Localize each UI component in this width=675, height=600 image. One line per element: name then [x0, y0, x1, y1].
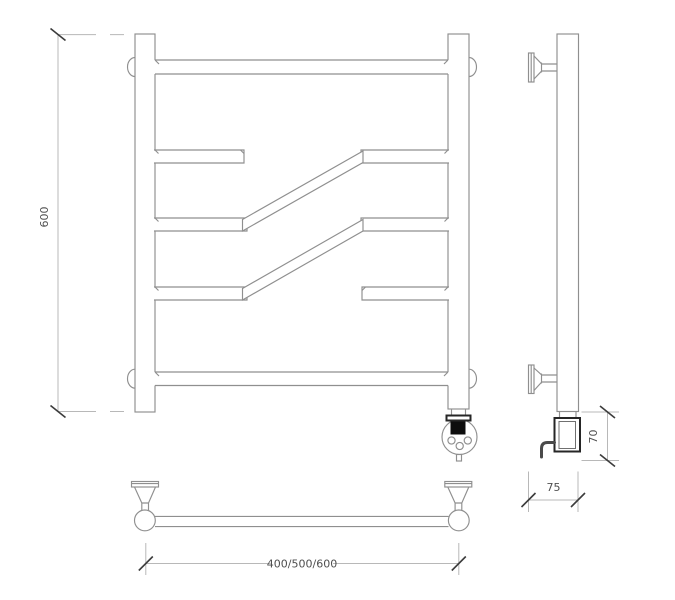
dim-width-label: 400/500/600	[267, 558, 337, 571]
heater-stem	[457, 455, 462, 462]
plan-wall-bracket-left	[132, 482, 159, 511]
heater-display	[451, 422, 466, 435]
heater-button-left	[448, 437, 455, 444]
front-diagonal-bar-upper	[243, 151, 364, 231]
dim-70-label: 70	[587, 430, 600, 444]
front-diagonal-bar-lower	[243, 220, 364, 301]
heating-element-front	[442, 409, 477, 461]
side-wall-bracket-bottom	[529, 365, 558, 394]
plan-left-post-section	[135, 510, 156, 531]
front-bottom-rung	[154, 372, 450, 386]
front-view	[128, 34, 478, 461]
dimension-width-options: 400/500/600	[139, 543, 466, 575]
side-heater-box	[555, 418, 581, 452]
side-view	[529, 34, 581, 457]
dim-600-label: 600	[38, 207, 51, 228]
power-cable	[542, 443, 555, 458]
plan-right-post-section	[448, 510, 469, 531]
front-top-rung	[154, 60, 450, 74]
towel-rail-drawing: 600 70 75	[0, 0, 675, 600]
front-left-post	[135, 34, 155, 412]
heater-button-right	[464, 437, 471, 444]
dimension-height-600: 600	[38, 29, 124, 418]
front-rung-level2	[154, 150, 449, 163]
heater-collar	[447, 416, 471, 421]
bottom-view	[132, 482, 472, 531]
dimension-element-70: 70	[582, 406, 620, 467]
front-rung-level4	[154, 287, 449, 300]
technical-drawing-canvas: 600 70 75	[0, 0, 675, 600]
heating-element-side	[542, 412, 581, 458]
plan-crossbar	[155, 516, 449, 526]
side-wall-bracket-top	[529, 53, 558, 82]
front-rung-level3	[154, 218, 449, 231]
side-post	[557, 34, 579, 412]
heater-button-middle	[456, 442, 463, 449]
dim-600-extension-lines	[58, 35, 124, 412]
dim-75-label: 75	[547, 481, 561, 494]
front-right-post	[448, 34, 469, 409]
plan-wall-bracket-right	[445, 482, 472, 511]
dimension-depth-75: 75	[522, 472, 586, 513]
